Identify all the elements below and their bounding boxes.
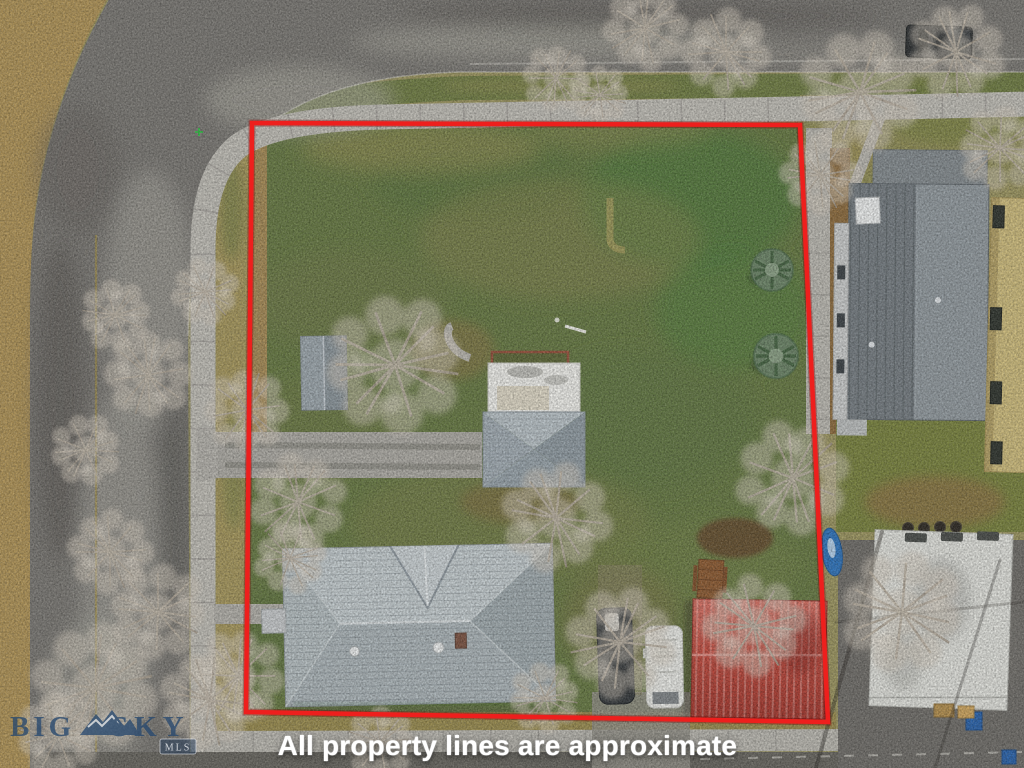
photo-grain-light xyxy=(0,0,1024,768)
watermark-badge-text: MLS xyxy=(165,743,192,754)
watermark-word-sky: SKY xyxy=(112,711,190,743)
aerial-photo: BIG SKY MLS All property lines are appro… xyxy=(0,0,1024,768)
watermark-word-big: BIG xyxy=(10,711,75,743)
caption-text: All property lines are approximate xyxy=(278,730,738,762)
aerial-photo-canvas: BIG SKY MLS xyxy=(0,0,1024,768)
